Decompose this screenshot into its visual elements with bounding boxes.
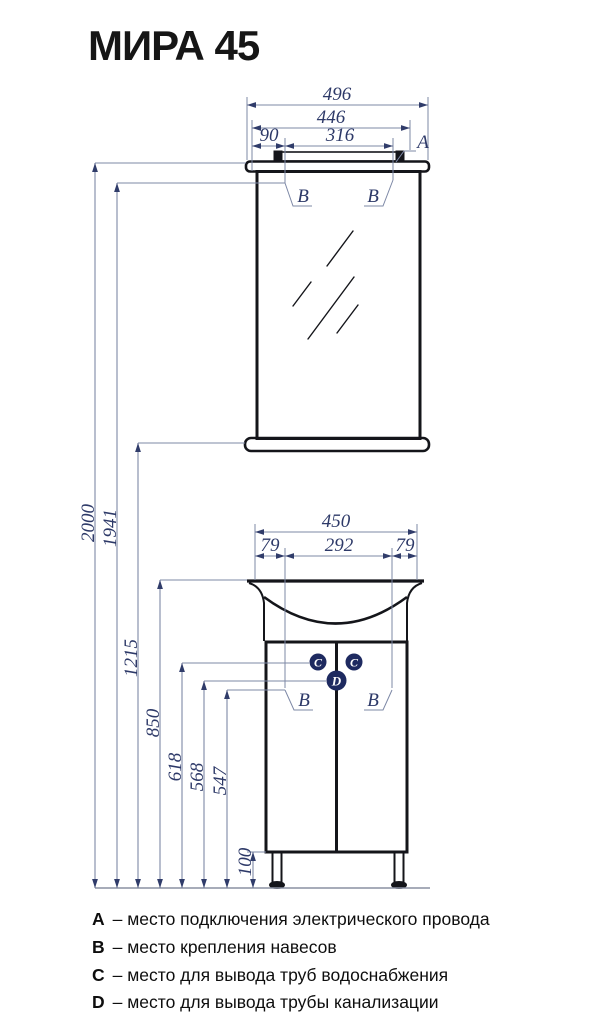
technical-drawing-page: МИРА 45 (0, 0, 608, 1024)
dim-value-316: 316 (325, 125, 355, 146)
dim-value-100: 100 (235, 847, 256, 876)
vanity-leg-right (395, 852, 404, 883)
dim-value-2000: 2000 (78, 504, 99, 543)
legend-row-c: C – место для вывода труб водоснабжения (92, 964, 592, 987)
legend-key-b: B (92, 936, 105, 959)
dim-value-850: 850 (143, 708, 164, 737)
height-dim-100: 100 (235, 847, 266, 888)
legend-text-c: – место для вывода труб водоснабжения (113, 964, 449, 987)
legend-text-d: – место для вывода трубы канализации (113, 991, 439, 1014)
dim-value-90: 90 (260, 125, 280, 146)
basin-side-right (407, 583, 422, 641)
legend-key-d: D (92, 991, 105, 1014)
height-dimensions: 2000 1941 1215 850 618 (78, 163, 326, 888)
dim-value-547: 547 (210, 765, 231, 795)
dim-value-618: 618 (165, 752, 186, 781)
callout-b-mirror-left: B (285, 183, 312, 207)
marker-d-label: D (331, 674, 342, 689)
height-dim-1215: 1215 (121, 443, 245, 888)
legend-row-b: B – место крепления навесов (92, 936, 592, 959)
legend-row-d: D – место для вывода трубы канализации (92, 991, 592, 1014)
legend-text-a: – место подключения электрического прово… (113, 908, 490, 931)
marker-c-right-label: C (350, 656, 359, 670)
callout-b-mirror-right: B (364, 180, 393, 207)
marker-c-left-label: C (314, 656, 323, 670)
height-dim-568: 568 (187, 681, 326, 888)
vanity-leg-left (273, 852, 282, 883)
callout-b-vanity-left: B (285, 690, 313, 711)
legend-key-a: A (92, 908, 105, 931)
furniture-dimension-drawing: 496 446 90 316 450 79 292 79 (0, 0, 608, 1024)
vanity-cabinet-drawing (247, 581, 424, 889)
mirror-body (257, 172, 420, 439)
legend-key-c: C (92, 964, 105, 987)
dim-value-496: 496 (323, 84, 352, 105)
marker-b-label: B (367, 690, 379, 711)
height-dim-850: 850 (143, 580, 247, 888)
mirror-glass-hatch (293, 231, 358, 339)
marker-b-label: B (297, 186, 309, 207)
marker-b-label: B (367, 186, 379, 207)
legend: A – место подключения электрического про… (92, 908, 592, 1019)
dim-value-450: 450 (322, 511, 351, 532)
dim-value-292: 292 (325, 535, 354, 556)
legend-text-b: – место крепления навесов (113, 936, 337, 959)
basin-side-left (249, 583, 264, 641)
dim-value-79-left: 79 (261, 535, 281, 556)
dim-value-1941: 1941 (100, 509, 121, 547)
dim-value-79-right: 79 (396, 535, 416, 556)
mirror-width-dimensions: 496 446 90 316 (247, 84, 428, 183)
legend-row-a: A – место подключения электрического про… (92, 908, 592, 931)
callout-b-vanity-right: B (364, 690, 392, 711)
mirror-cabinet-drawing (245, 151, 429, 452)
marker-b-label: B (298, 690, 310, 711)
mirror-light-fixture (276, 152, 402, 161)
dim-value-568: 568 (187, 762, 208, 791)
dim-value-1215: 1215 (121, 639, 142, 677)
marker-a-label: A (415, 132, 429, 153)
